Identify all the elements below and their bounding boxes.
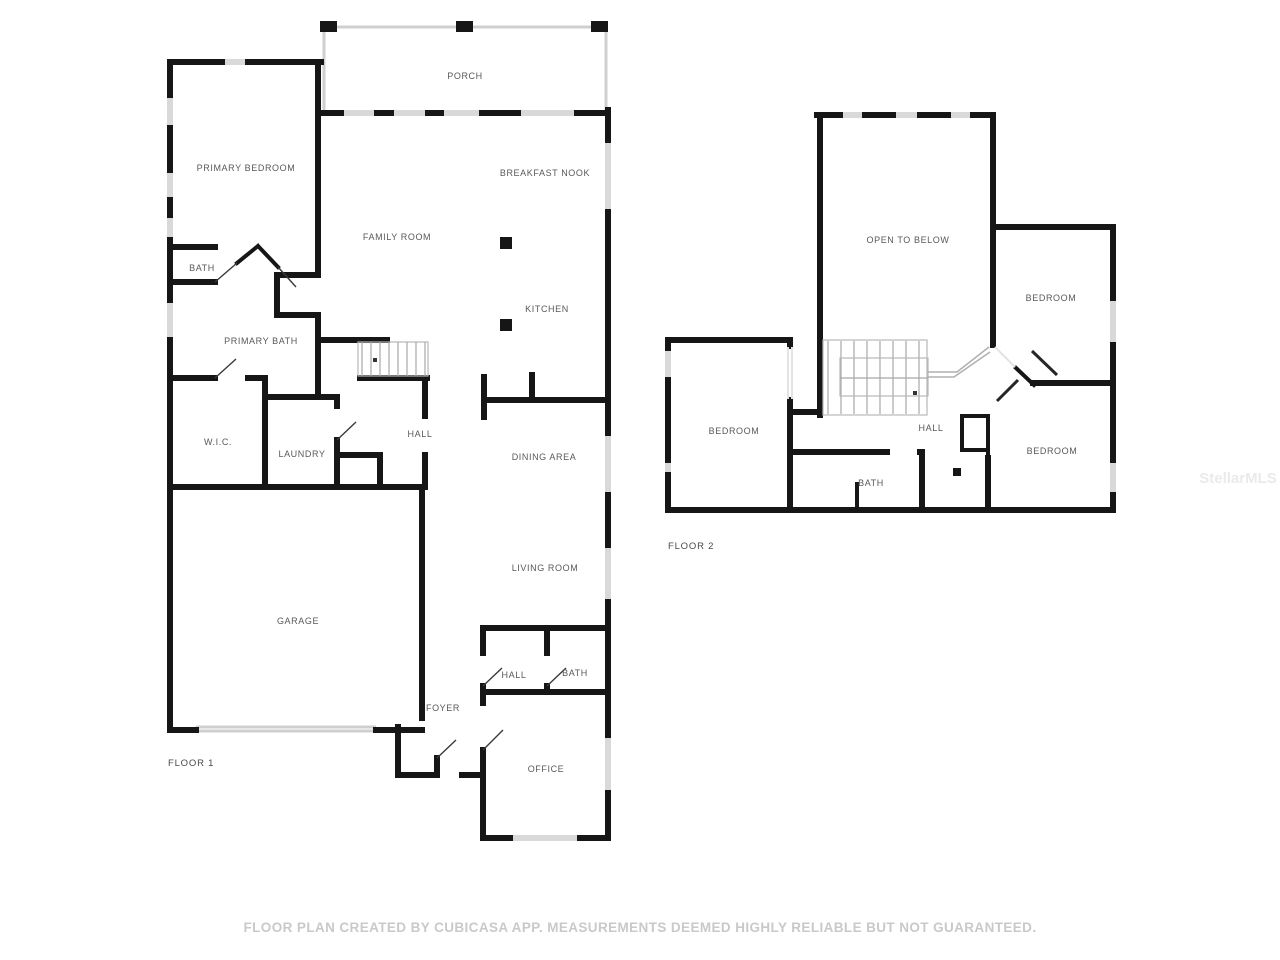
door-jamb — [953, 468, 961, 476]
room-label-foyer: FOYER — [426, 703, 460, 713]
bedroom-door-leaf — [997, 380, 1018, 401]
floor2-windows — [668, 115, 1113, 495]
kitchen-column-icon — [500, 319, 512, 331]
room-label-primary-bedroom: PRIMARY BEDROOM — [197, 163, 296, 173]
room-label-dining-area: DINING AREA — [512, 452, 577, 462]
angled-door-opening — [995, 347, 1015, 367]
room-label-bedroom-west: BEDROOM — [709, 426, 760, 436]
room-label-living-room: LIVING ROOM — [512, 563, 579, 573]
bedroom-door-leaf — [1032, 351, 1057, 375]
floor2-plan: OPEN TO BELOW BEDROOM BEDROOM HALL BEDRO… — [668, 115, 1113, 552]
vestibule-angled-walls — [237, 246, 278, 267]
kitchen-column-icon — [500, 237, 512, 249]
room-label-primary-bath: PRIMARY BATH — [224, 336, 298, 346]
garage-door — [196, 727, 376, 731]
porch-column-icon — [591, 21, 608, 32]
room-label-breakfast-nook: BREAKFAST NOOK — [500, 168, 590, 178]
room-label-bath-1: BATH — [189, 263, 215, 273]
room-label-bedroom-se: BEDROOM — [1027, 446, 1078, 456]
stellar-mls-watermark: StellarMLS — [1199, 470, 1277, 487]
stair-railing — [927, 347, 990, 377]
room-label-office: OFFICE — [528, 764, 565, 774]
room-label-porch: PORCH — [447, 71, 483, 81]
room-label-family-room: FAMILY ROOM — [363, 232, 431, 242]
room-label-bath-2: BATH — [562, 668, 588, 678]
room-label-hall-1: HALL — [408, 429, 433, 439]
room-label-laundry: LAUNDRY — [278, 449, 325, 459]
porch-column-icon — [456, 21, 473, 32]
room-label-hall-upstairs: HALL — [919, 423, 944, 433]
hall-closet-walls — [962, 416, 988, 458]
room-label-wic: W.I.C. — [204, 437, 232, 447]
floor1-label: FLOOR 1 — [168, 758, 214, 769]
room-label-bath-upstairs: BATH — [858, 478, 884, 488]
bedroom-left-door-opening — [788, 347, 792, 399]
room-label-open-to-below: OPEN TO BELOW — [867, 235, 950, 245]
floor1-windows — [170, 62, 608, 838]
floor-plan-page: PORCH PRIMARY BEDROOM BREAKFAST NOOK FAM… — [0, 0, 1280, 960]
porch-walls — [324, 27, 606, 113]
angled-wall — [1016, 368, 1034, 385]
room-label-kitchen: KITCHEN — [525, 304, 569, 314]
room-label-bedroom-ne: BEDROOM — [1026, 293, 1077, 303]
staircase-floor2 — [823, 340, 990, 415]
room-label-hall-2: HALL — [502, 670, 527, 680]
footer-disclaimer: FLOOR PLAN CREATED BY CUBICASA APP. MEAS… — [244, 920, 1037, 935]
floor-plan-canvas: PORCH PRIMARY BEDROOM BREAKFAST NOOK FAM… — [0, 0, 1280, 960]
floor1-walls — [170, 62, 608, 838]
floor2-label: FLOOR 2 — [668, 541, 714, 552]
porch-column-icon — [320, 21, 337, 32]
room-label-garage: GARAGE — [277, 616, 319, 626]
staircase-floor1 — [358, 342, 428, 376]
floor1-plan: PORCH PRIMARY BEDROOM BREAKFAST NOOK FAM… — [168, 21, 608, 838]
